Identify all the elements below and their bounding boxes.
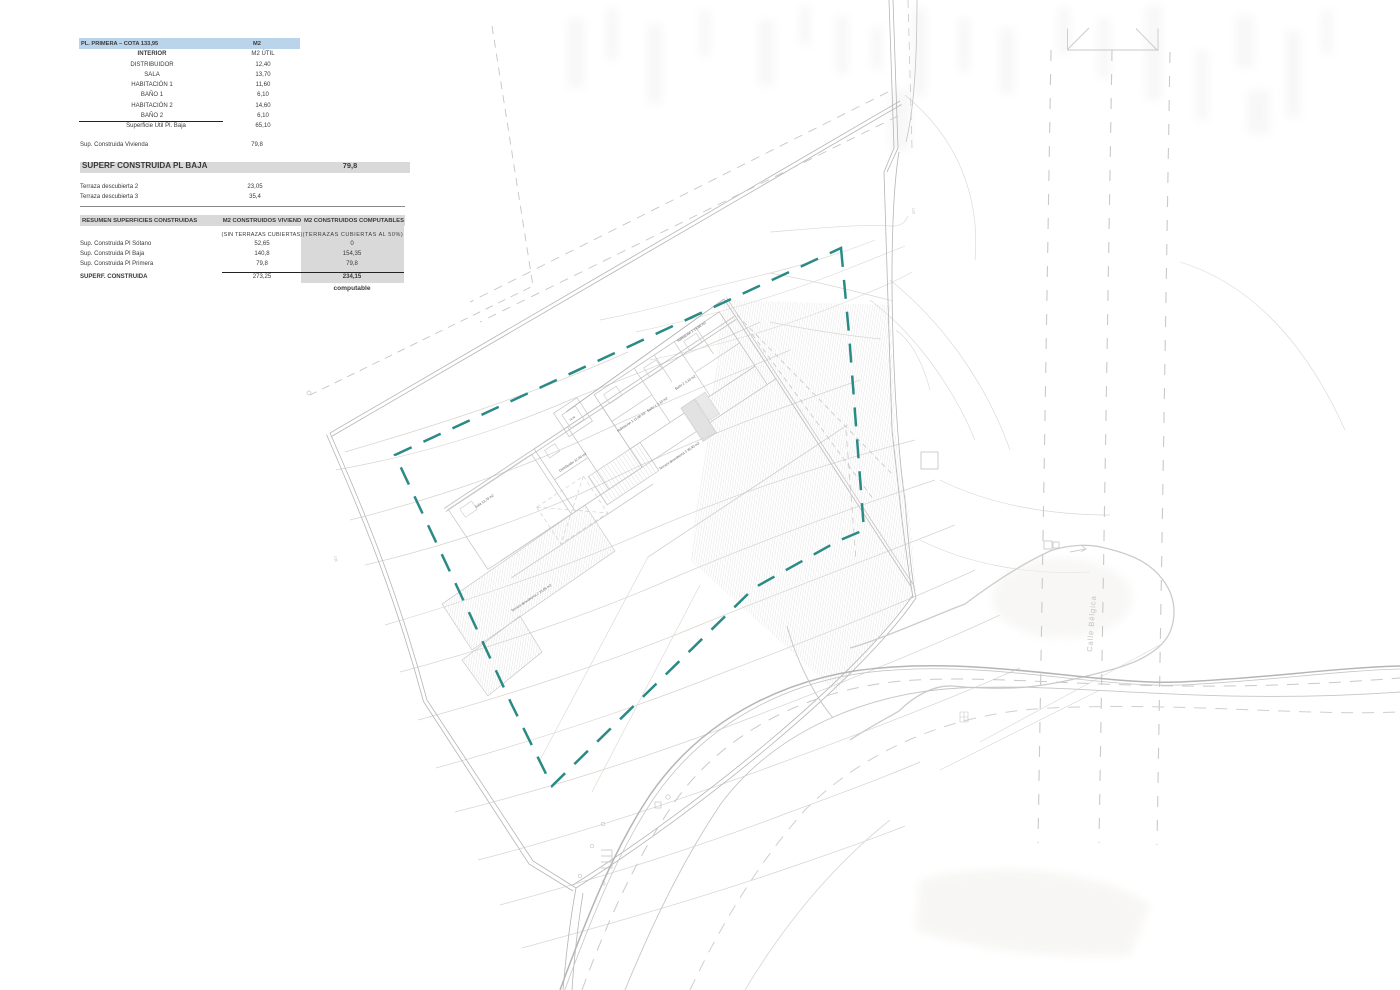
- svg-text:Baño 1 2,10 m2: Baño 1 2,10 m2: [646, 396, 668, 413]
- svg-text:Terraza descubierta 3 35,40 m: Terraza descubierta 3 35,40 m2: [658, 441, 700, 471]
- svg-text:Baño 2 2,10 m2: Baño 2 2,10 m2: [674, 374, 696, 391]
- svg-text:13,06: 13,06: [568, 415, 576, 422]
- svg-text:135: 135: [333, 555, 338, 562]
- svg-text:133: 133: [911, 208, 916, 214]
- svg-text:Sala 13,70 m2: Sala 13,70 m2: [474, 493, 495, 508]
- svg-text:Habitación 1 11,60 m2: Habitación 1 11,60 m2: [616, 411, 646, 433]
- svg-text:Distribuidor 12,40 m2: Distribuidor 12,40 m2: [558, 452, 587, 473]
- svg-text:Habitación 2 14,60 m2: Habitación 2 14,60 m2: [676, 321, 707, 343]
